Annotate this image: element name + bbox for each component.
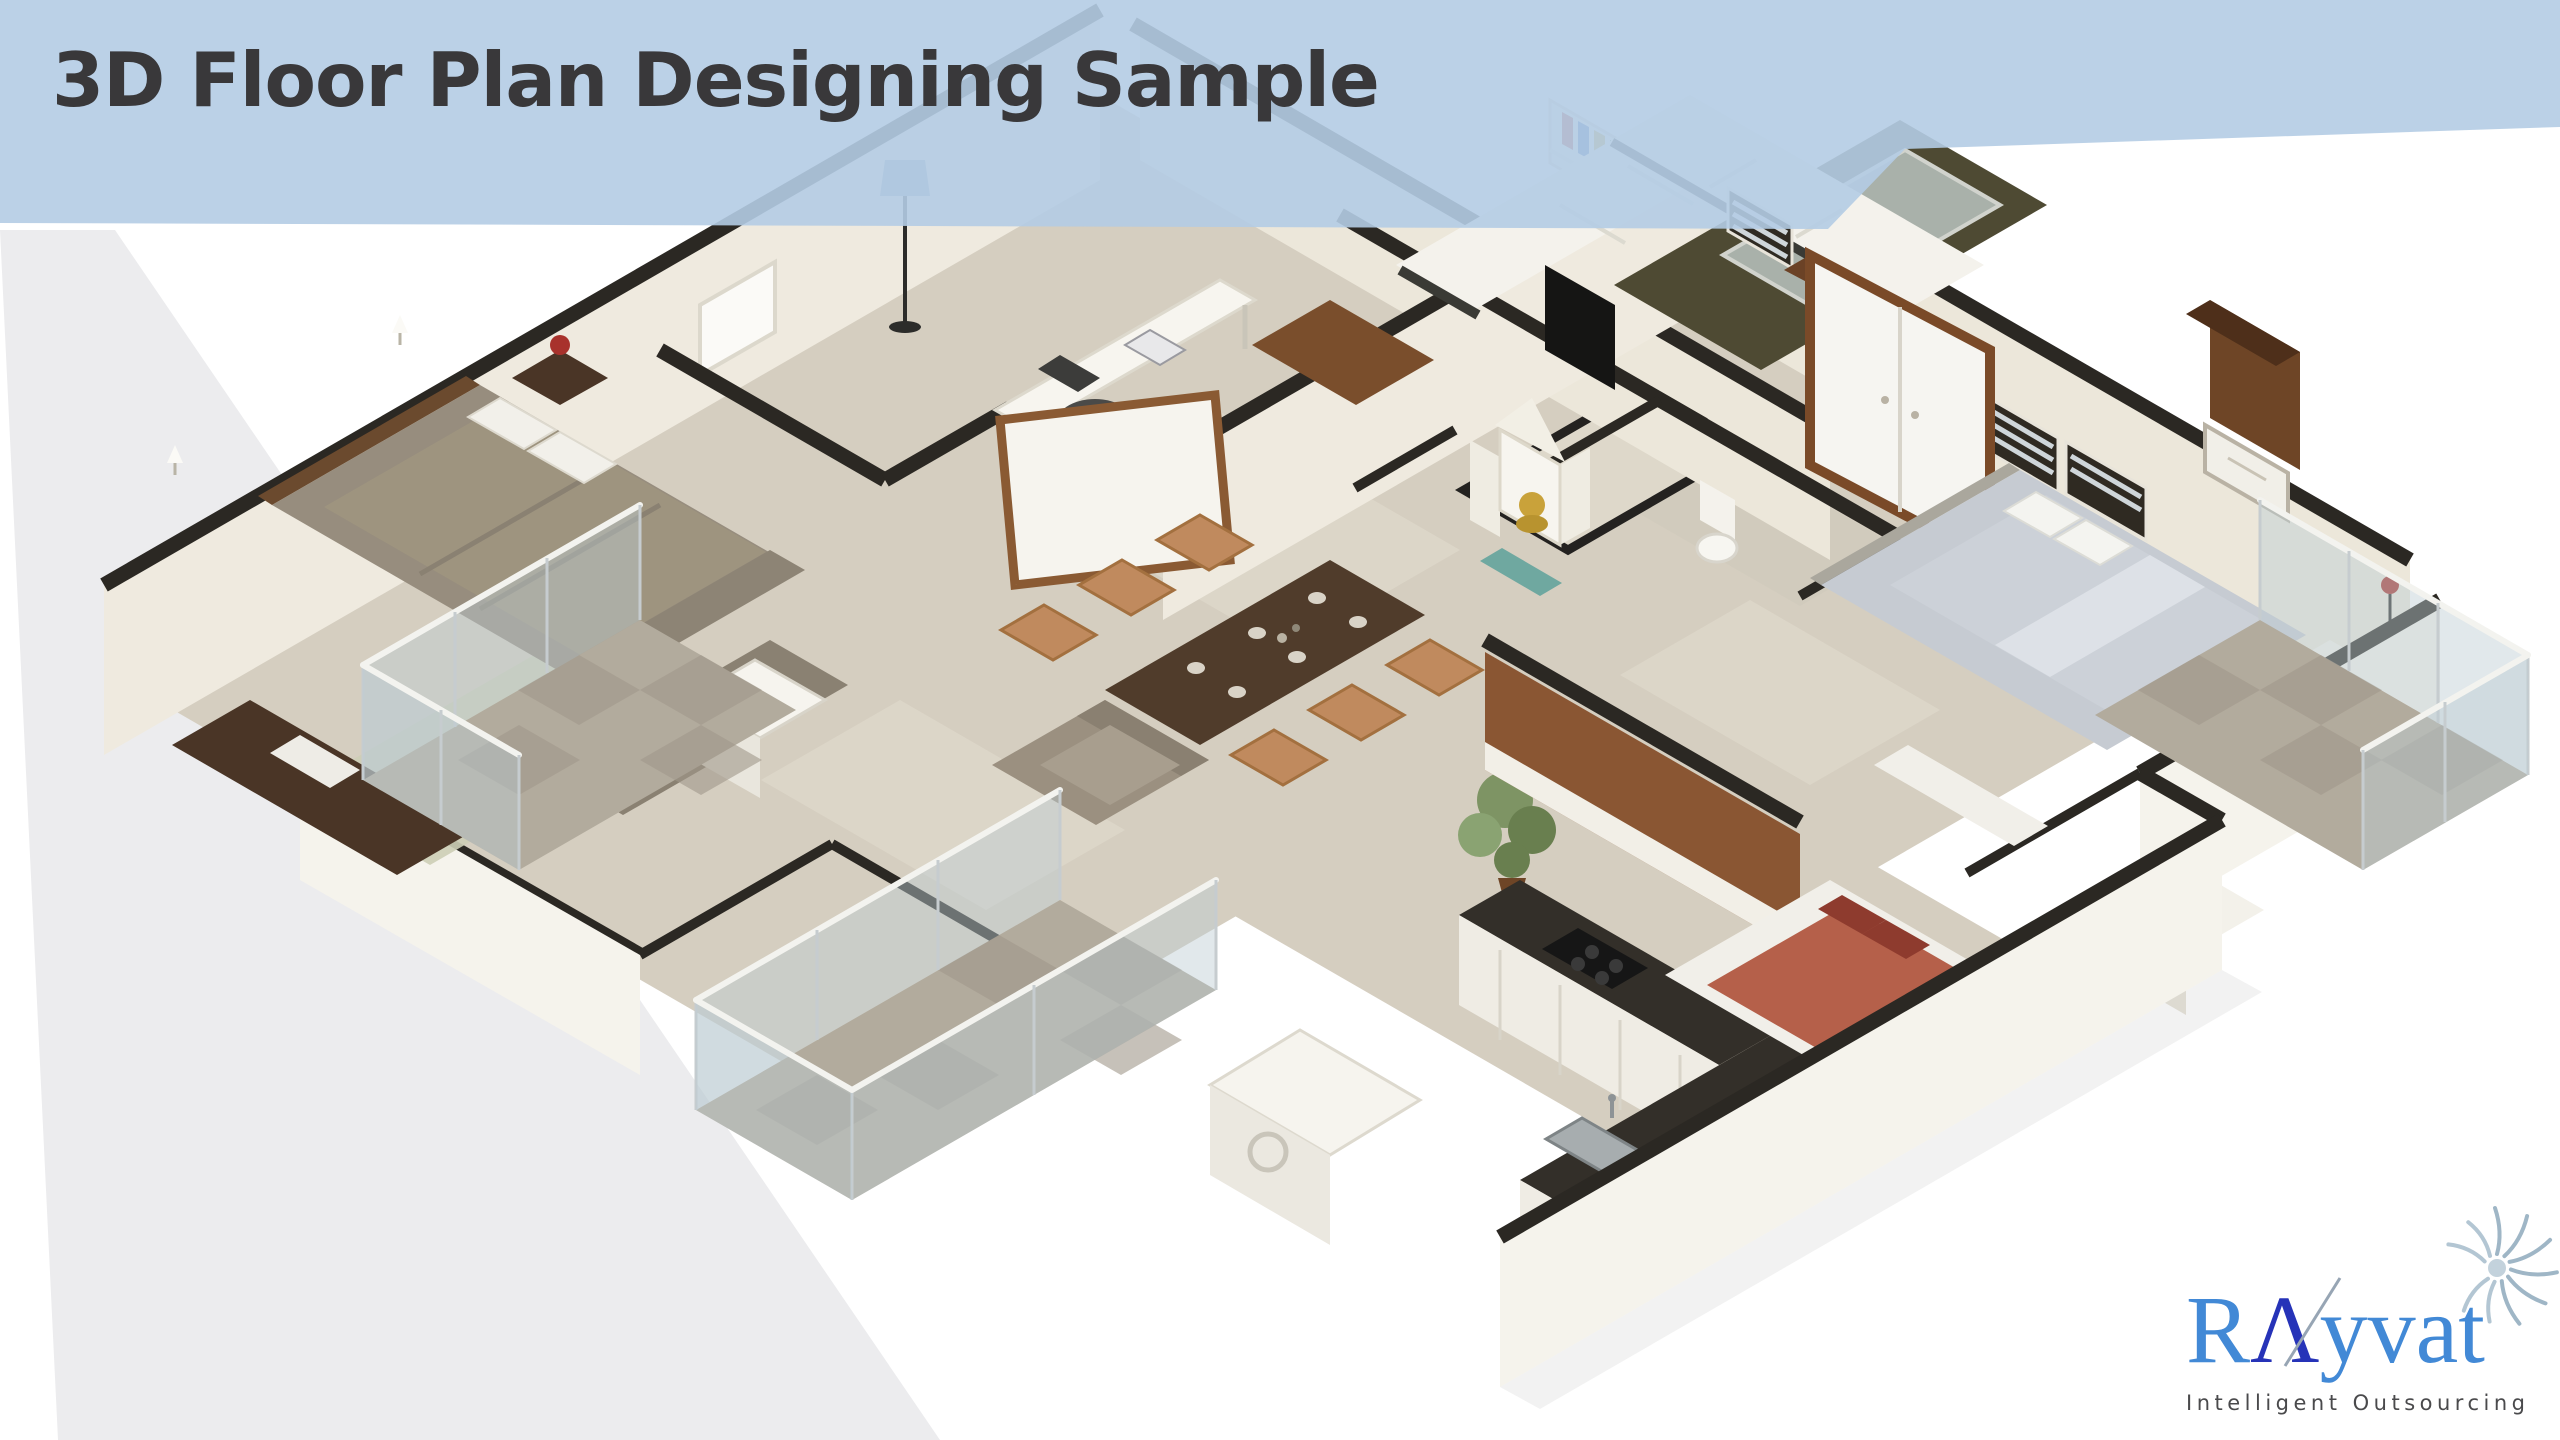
red-table-lamp	[550, 335, 570, 355]
buddha-idol	[1519, 492, 1545, 518]
page-title: 3D Floor Plan Designing Sample	[52, 36, 1379, 124]
brand-tagline: Intelligent Outsourcing	[2186, 1391, 2530, 1415]
brand-wordmark: RΛyvat	[2186, 1276, 2485, 1383]
toilet	[1697, 534, 1737, 562]
floor-plan-scene: 3D Floor Plan Designing Sample RΛyvat In…	[0, 0, 2560, 1440]
poster: 3D Floor Plan Designing Sample RΛyvat In…	[0, 0, 2560, 1440]
